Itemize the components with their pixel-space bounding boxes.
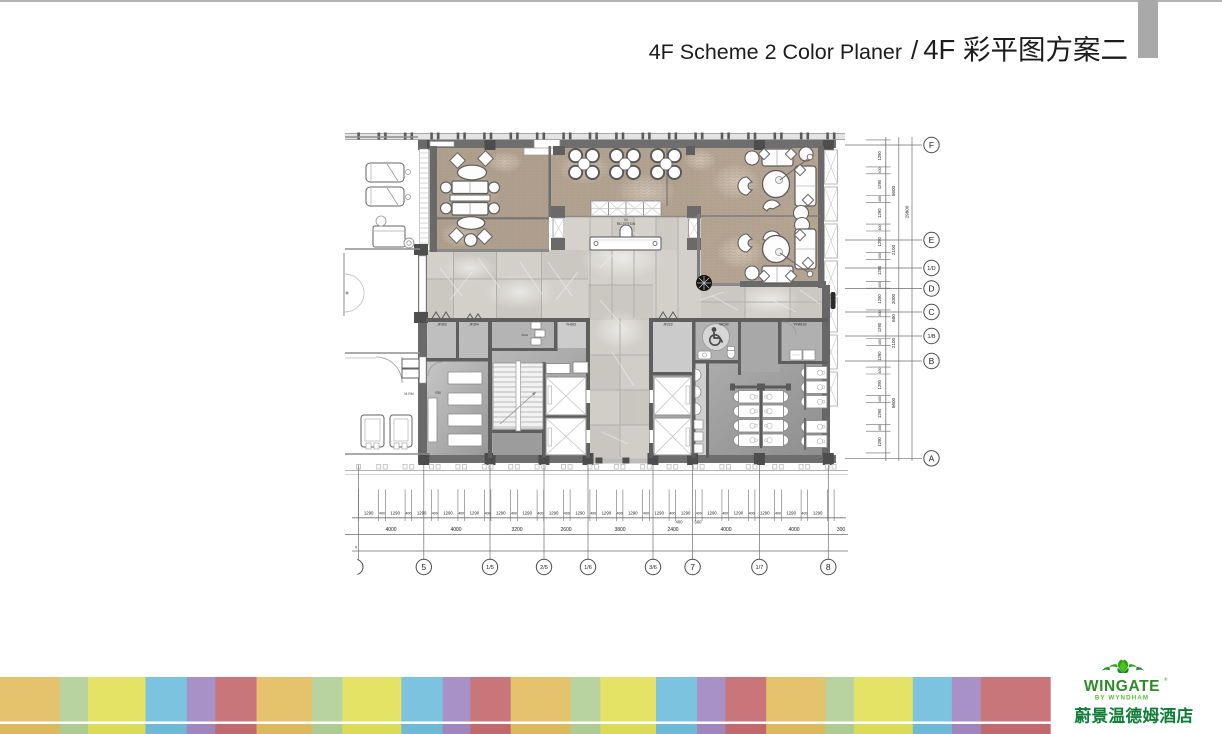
svg-text:2600: 2600 [560, 527, 571, 533]
svg-text:1290: 1290 [496, 511, 506, 516]
svg-text:400: 400 [669, 512, 675, 516]
svg-text:1290: 1290 [877, 379, 882, 389]
svg-text:400: 400 [485, 512, 491, 516]
svg-text:1290: 1290 [575, 511, 585, 516]
svg-text:2000: 2000 [891, 293, 896, 304]
svg-text:E: E [929, 235, 935, 245]
svg-text:2100: 2100 [891, 337, 896, 348]
svg-text:400: 400 [878, 396, 882, 402]
svg-text:1290: 1290 [760, 511, 770, 516]
svg-text:4000: 4000 [788, 527, 799, 533]
svg-text:1290: 1290 [390, 511, 400, 516]
svg-text:4000: 4000 [450, 527, 461, 533]
svg-text:1290: 1290 [877, 322, 882, 332]
svg-text:400: 400 [590, 512, 596, 516]
svg-text:3800: 3800 [614, 527, 625, 533]
svg-text:2400: 2400 [667, 527, 678, 533]
svg-text:1290: 1290 [877, 437, 882, 447]
svg-text:400: 400 [878, 225, 882, 231]
svg-text:1290: 1290 [681, 511, 691, 516]
svg-text:1290: 1290 [417, 511, 427, 516]
svg-text:1/6: 1/6 [584, 565, 592, 571]
svg-text:3200: 3200 [511, 527, 522, 533]
svg-text:400: 400 [775, 512, 781, 516]
svg-text:400: 400 [878, 196, 882, 202]
svg-text:400: 400 [379, 512, 385, 516]
svg-text:1290: 1290 [364, 511, 374, 516]
svg-text:3/6: 3/6 [649, 565, 657, 571]
svg-text:WC02: WC02 [719, 323, 729, 327]
svg-text:®: ® [1164, 676, 1168, 682]
svg-text:8: 8 [826, 562, 831, 572]
svg-text:400: 400 [878, 253, 882, 259]
svg-text:1290: 1290 [443, 511, 453, 516]
svg-text:1/B: 1/B [927, 334, 935, 340]
svg-text:600: 600 [891, 314, 896, 322]
svg-text:2/5: 2/5 [540, 565, 548, 571]
svg-text:YFW102: YFW102 [793, 323, 806, 327]
svg-text:1290: 1290 [707, 511, 717, 516]
svg-text:400: 400 [878, 310, 882, 316]
svg-text:400: 400 [643, 512, 649, 516]
svg-text:5600: 5600 [891, 397, 896, 408]
svg-text:400: 400 [878, 339, 882, 345]
svg-text:D: D [928, 284, 934, 294]
svg-text:2100: 2100 [891, 244, 896, 255]
svg-text:400: 400 [878, 282, 882, 288]
svg-text:400: 400 [878, 368, 882, 374]
svg-text:400: 400 [432, 512, 438, 516]
svg-text:400: 400 [722, 512, 728, 516]
svg-text:RM: RM [436, 391, 441, 395]
svg-text:M.RM: M.RM [404, 392, 413, 396]
svg-text:4000: 4000 [385, 527, 396, 533]
svg-text:1290: 1290 [470, 511, 480, 516]
svg-text:BY WYNDHAM: BY WYNDHAM [1095, 695, 1149, 702]
svg-text:1/5: 1/5 [486, 565, 494, 571]
svg-text:400: 400 [696, 512, 702, 516]
svg-text:400: 400 [676, 520, 684, 525]
svg-text:1/D: 1/D [927, 266, 935, 272]
svg-text:1290: 1290 [522, 511, 532, 516]
svg-text:400: 400 [564, 512, 570, 516]
svg-text:400: 400 [511, 512, 517, 516]
svg-text:1290: 1290 [877, 408, 882, 418]
svg-text:JF302: JF302 [437, 323, 447, 327]
svg-text:F: F [929, 140, 934, 150]
svg-text:400: 400 [749, 512, 755, 516]
svg-text:5: 5 [421, 562, 426, 572]
svg-text:400: 400 [537, 512, 543, 516]
svg-text:1290: 1290 [628, 511, 638, 516]
svg-text:JF222: JF222 [663, 323, 673, 327]
svg-text:300: 300 [837, 527, 846, 533]
svg-text:1290: 1290 [654, 511, 664, 516]
svg-text:1290: 1290 [877, 351, 882, 361]
svg-text:1290: 1290 [877, 179, 882, 189]
svg-text:1290: 1290 [877, 294, 882, 304]
svg-text:AHU: AHU [522, 333, 528, 337]
svg-text:4000: 4000 [720, 527, 731, 533]
svg-text:x: x [355, 545, 358, 550]
svg-text:1290: 1290 [877, 150, 882, 160]
svg-text:1/7: 1/7 [756, 565, 764, 571]
svg-text:400: 400 [878, 167, 882, 173]
svg-text:1290: 1290 [877, 265, 882, 275]
svg-text:400: 400 [458, 512, 464, 516]
svg-text:A: A [929, 453, 935, 463]
svg-text:C: C [928, 307, 934, 317]
svg-text:1290: 1290 [813, 511, 823, 516]
svg-text:蔚景温德姆酒店: 蔚景温德姆酒店 [1075, 706, 1194, 726]
svg-text:400: 400 [617, 512, 623, 516]
svg-text:YHJ02: YHJ02 [566, 323, 576, 327]
svg-text:1290: 1290 [877, 208, 882, 218]
svg-text:1290: 1290 [786, 511, 796, 516]
svg-text:400: 400 [801, 512, 807, 516]
svg-text:1290: 1290 [877, 236, 882, 246]
svg-text:1290: 1290 [549, 511, 559, 516]
svg-text:400: 400 [405, 512, 411, 516]
svg-text:1290: 1290 [734, 511, 744, 516]
svg-text:600: 600 [695, 520, 703, 525]
svg-text:7: 7 [690, 562, 695, 572]
svg-text:5600: 5600 [891, 185, 896, 196]
svg-text:B: B [929, 356, 935, 366]
svg-text:400: 400 [878, 425, 882, 431]
svg-text:29800: 29800 [904, 205, 909, 218]
svg-text:1290: 1290 [602, 511, 612, 516]
svg-text:JF304: JF304 [469, 323, 479, 327]
svg-text:WINGATE: WINGATE [1084, 678, 1160, 695]
